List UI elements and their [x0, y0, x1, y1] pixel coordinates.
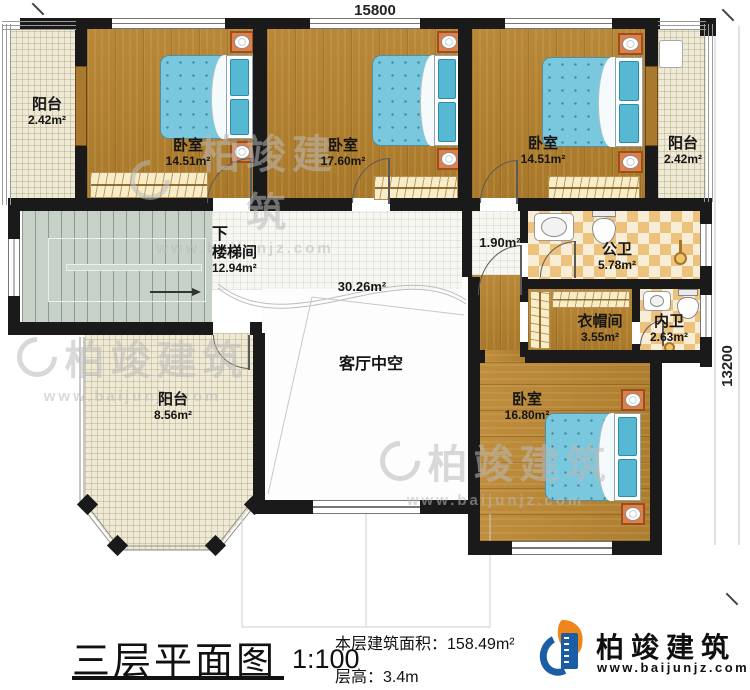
label-balcony-bottom-left: 阳台 8.56m²: [154, 392, 192, 422]
wall-segment: [650, 363, 662, 555]
window: [512, 541, 612, 555]
balcony-parapet: [2, 24, 11, 205]
pillow: [438, 102, 456, 142]
lower-floor-projection: [242, 514, 490, 627]
wall-segment: [520, 211, 528, 243]
window: [505, 18, 612, 29]
pillow: [438, 59, 456, 99]
window: [310, 18, 420, 29]
window: [700, 295, 712, 337]
label-bath-public: 公卫 5.78m²: [598, 242, 636, 272]
floor-area-label: 本层建筑面积：: [335, 636, 447, 653]
wall-segment: [700, 266, 712, 295]
logo-tower-shape: [561, 633, 578, 669]
door-leaf: [516, 160, 518, 204]
wall-segment: [518, 198, 712, 211]
bed-bedroom1: [160, 55, 253, 139]
dimension-top: 15800: [320, 2, 430, 18]
cloakroom-rack-vertical: [530, 291, 550, 349]
floor-height-value: 3.4m: [383, 669, 419, 686]
wall-segment: [8, 322, 213, 335]
pillow: [619, 104, 639, 144]
balcony-parapet: [2, 21, 76, 30]
balcony-bay-parapet: [80, 337, 256, 550]
balcony-parapet: [704, 24, 713, 202]
label-vestibule-area: 1.90m²: [479, 236, 520, 251]
wall-segment: [225, 18, 310, 29]
floor-area-line: 本层建筑面积：158.49m²: [335, 630, 515, 654]
balcony-parapet: [658, 21, 706, 30]
label-balcony-top-left: 阳台 2.42m²: [28, 97, 66, 127]
label-bedroom2: 卧室 17.60m²: [321, 138, 366, 168]
cloakroom-rack-horizontal: [552, 291, 630, 308]
floor-height-line: 层高：3.4m: [335, 663, 419, 687]
right-dimension-lines: [715, 26, 739, 545]
door-leaf: [388, 158, 390, 204]
wardrobe-bedroom3: [548, 176, 640, 200]
wall-segment: [468, 541, 512, 555]
wall-segment: [458, 18, 472, 209]
wall-segment: [468, 350, 485, 363]
brand-logo-icon: [540, 620, 588, 682]
wall-segment: [420, 500, 480, 514]
door-leaf: [574, 241, 576, 278]
label-corridor-area: 30.26m²: [338, 280, 386, 295]
wall-segment: [612, 541, 662, 555]
label-bath-inner: 内卫 2.63m²: [650, 314, 688, 344]
wall-segment: [253, 18, 267, 209]
wall-segment: [525, 350, 712, 363]
bed-bedroom3: [542, 57, 643, 147]
label-balcony-top-right: 阳台 2.42m²: [664, 136, 702, 166]
label-living-void: 客厅中空: [339, 356, 403, 374]
door-leaf: [520, 245, 522, 295]
balcony-cabinet: [659, 40, 683, 68]
bed-headboard: [614, 413, 641, 501]
label-stairwell: 下 楼梯间 12.94m²: [212, 226, 257, 275]
bed-bedroom2: [372, 55, 460, 146]
nightstand-with-lamp: [621, 503, 645, 525]
brand-site: www.baijunjz.com: [597, 660, 749, 675]
nightstand-with-lamp: [618, 151, 643, 173]
floor-area-value: 158.49m²: [447, 636, 515, 653]
door-leaf: [248, 335, 250, 370]
label-bedroom3: 卧室 14.51m²: [521, 136, 566, 166]
door-leaf: [250, 158, 252, 204]
pillow: [618, 459, 637, 498]
bed-headboard: [615, 57, 643, 147]
balcony-door-panel: [645, 66, 658, 146]
nightstand-with-lamp: [618, 33, 643, 55]
label-bedroom1: 卧室 14.51m²: [166, 138, 211, 168]
pillow: [618, 417, 637, 456]
wall-segment: [250, 198, 352, 211]
dimension-right: 13200: [719, 331, 735, 401]
wall-segment: [528, 279, 712, 289]
nightstand-with-lamp: [621, 389, 645, 411]
stair-arrow-head: [192, 288, 201, 296]
wall-segment: [390, 198, 480, 211]
window: [700, 224, 712, 266]
pillow: [230, 59, 249, 96]
label-cloakroom: 衣帽间 3.55m²: [577, 314, 622, 344]
living-void-diagonals: [268, 297, 464, 494]
wall-segment: [253, 333, 265, 514]
shower-head-icon: [674, 252, 687, 265]
bed-headboard: [226, 55, 253, 139]
toilet-tank-inner: [678, 289, 698, 296]
bed-bedroom4: [545, 413, 641, 501]
window: [313, 500, 420, 514]
sink-inner-bath: [643, 291, 671, 311]
window: [112, 18, 225, 29]
pillow: [619, 61, 639, 101]
wall-segment: [462, 211, 472, 277]
wall-segment: [8, 198, 213, 211]
floor-height-label: 层高：: [335, 669, 383, 686]
bed-headboard: [434, 55, 460, 146]
pillow: [230, 99, 249, 136]
wardrobe-bedroom1: [90, 172, 208, 198]
floor-plan-canvas: 柏竣建筑 www.baijunjz.com 柏竣建筑 www.baijunjz.…: [0, 0, 750, 690]
stair-direction-arrow: [150, 291, 194, 293]
nightstand-with-lamp: [230, 31, 254, 53]
stair-center-divider: [66, 264, 202, 271]
label-bedroom4: 卧室 16.80m²: [505, 392, 550, 422]
wall-segment: [632, 289, 640, 322]
sink-public-bath: [534, 213, 574, 241]
window: [8, 239, 20, 296]
balcony-door-panel: [75, 66, 87, 146]
title-underline: [72, 676, 284, 680]
